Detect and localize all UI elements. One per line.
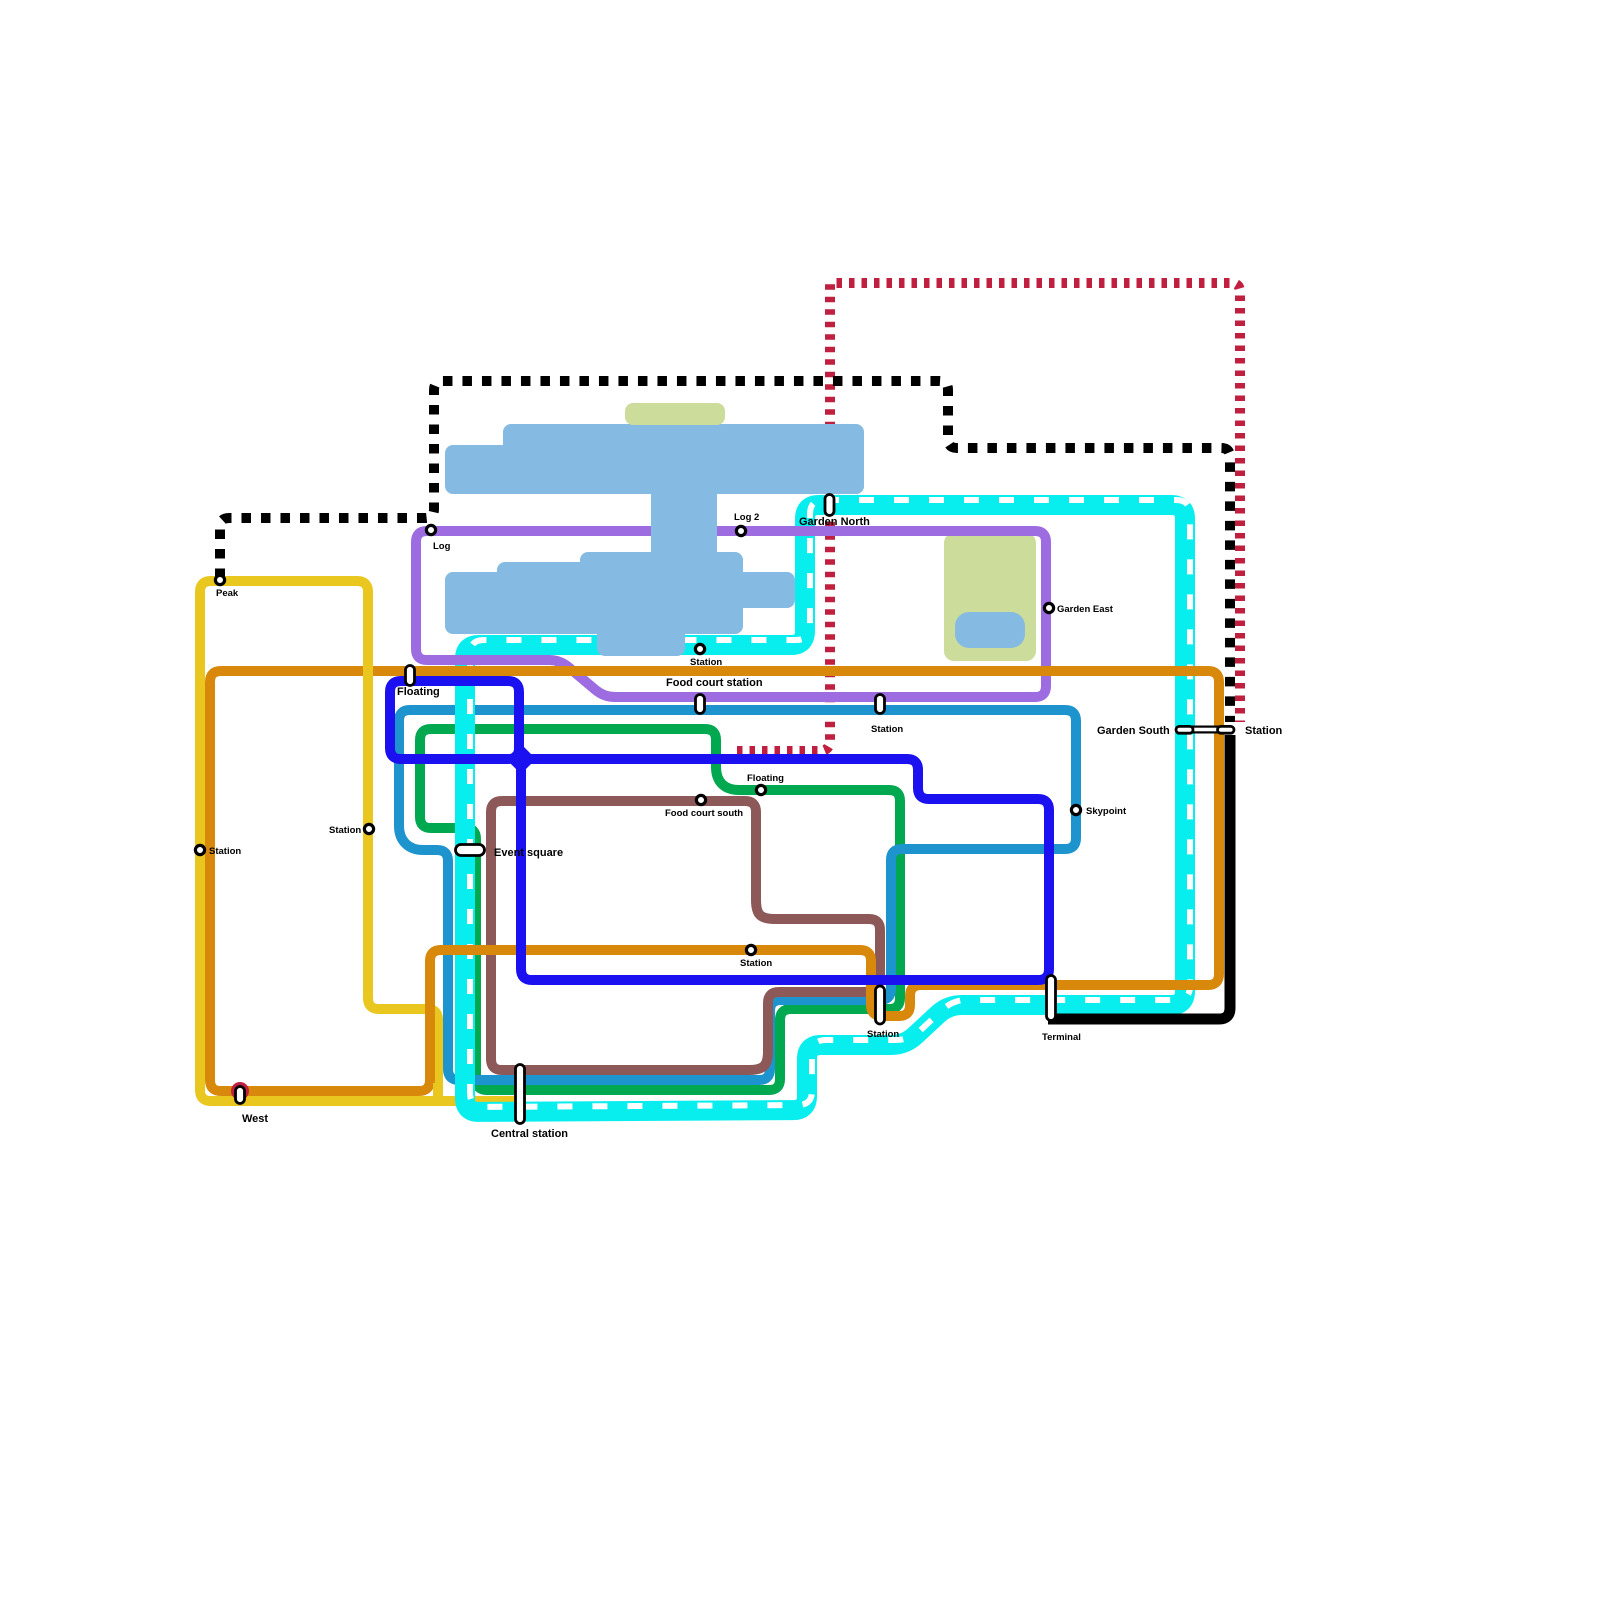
svg-text:Station: Station: [867, 1029, 899, 1040]
svg-text:Food court south: Food court south: [665, 808, 743, 819]
svg-text:Garden East: Garden East: [1057, 604, 1114, 615]
svg-text:Food court station: Food court station: [666, 677, 763, 689]
svg-text:Garden North: Garden North: [799, 516, 870, 528]
svg-text:West: West: [242, 1113, 268, 1125]
svg-text:Log: Log: [433, 541, 451, 552]
svg-text:Log 2: Log 2: [734, 512, 759, 523]
svg-text:Station: Station: [871, 724, 903, 735]
svg-text:Event square: Event square: [494, 847, 563, 859]
svg-text:Peak: Peak: [216, 588, 239, 599]
svg-text:Floating: Floating: [747, 773, 784, 784]
svg-text:Station: Station: [329, 825, 361, 836]
svg-text:Station: Station: [1245, 725, 1283, 737]
svg-text:Garden South: Garden South: [1097, 725, 1170, 737]
svg-text:Central station: Central station: [491, 1128, 568, 1140]
svg-text:Station: Station: [690, 657, 722, 668]
svg-text:Skypoint: Skypoint: [1086, 806, 1127, 817]
svg-text:Floating: Floating: [397, 686, 440, 698]
svg-text:Station: Station: [209, 846, 241, 857]
svg-text:Station: Station: [740, 958, 772, 969]
svg-text:Terminal: Terminal: [1042, 1032, 1081, 1043]
